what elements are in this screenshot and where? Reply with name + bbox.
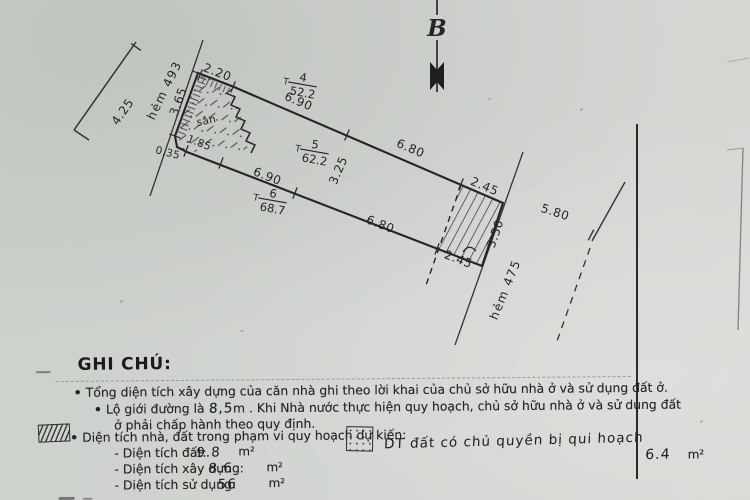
legend-section: GHI CHÚ: •Tổng diện tích xây dựng của că…	[0, 0, 750, 500]
note2-prefix: Lộ giới đường là	[106, 401, 209, 417]
area-row-unit: m²	[268, 476, 285, 490]
bullet-icon: •	[70, 430, 82, 445]
dotted-area-swatch	[346, 426, 373, 451]
road-width-handwritten: 8,5	[208, 400, 233, 417]
area-row-unit: m²	[266, 460, 283, 474]
hatched-area-swatch	[38, 423, 71, 442]
area-row-value: 8.6	[208, 460, 233, 477]
area-row-value: 9.8	[196, 444, 221, 461]
legend-note-2-line-1: •Lộ giới đường là 8,5m . Khi Nhà nước th…	[94, 397, 681, 418]
planning-area-value: 6.4	[645, 446, 671, 463]
bullet-icon: •	[94, 402, 106, 417]
area-row-unit: m²	[238, 444, 255, 458]
scan-dash-artifact	[36, 371, 51, 373]
area-row-label: - Diện tích đất:	[114, 445, 206, 461]
planning-note-handwritten: DT đất có chủ quyền bị qui hoạch	[384, 430, 644, 453]
planning-area-cell: 6.4 m²	[645, 443, 704, 463]
cut-off-text-artifact	[83, 498, 93, 500]
legend-title: GHI CHÚ:	[77, 354, 171, 375]
planning-area-unit: m²	[688, 447, 705, 461]
scanned-document-page: B 4.25 hẻm 493 5.80 hẻm 475	[0, 0, 750, 500]
area-row-value: 56	[217, 476, 237, 493]
note2-mid: m . Khi Nhà nước thực hiện quy hoạch, ch…	[233, 397, 681, 416]
bullet-icon: •	[74, 385, 86, 400]
